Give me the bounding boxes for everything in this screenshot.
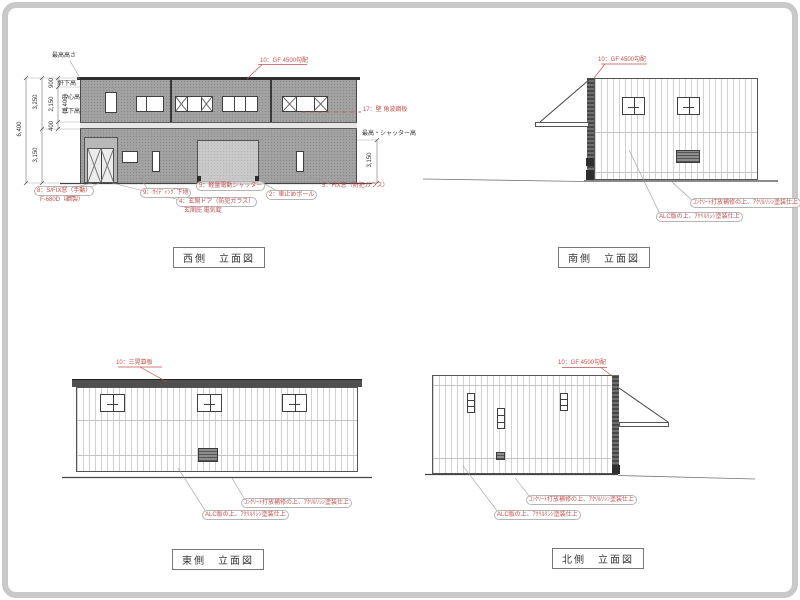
east-window (100, 394, 125, 412)
south-canopy (535, 122, 589, 127)
south-joint-line (595, 172, 757, 173)
east-window (197, 394, 222, 412)
window-mullion (245, 97, 246, 111)
door-x-mark (101, 149, 114, 182)
south-vent-grille (676, 150, 700, 163)
east-roof-note: 10：三晃葺板 (116, 359, 153, 367)
window-mullion (289, 404, 301, 405)
west-dim-lower: 3,150 (33, 140, 39, 170)
west-dim-window-band: 2,150 (49, 89, 55, 119)
west-floor-band (80, 122, 357, 129)
window-mullion (561, 405, 567, 406)
north-vent-grille (496, 452, 505, 460)
west-title: 西側 立面図 (173, 247, 265, 268)
west-wall-note: 17：壁 角波鋼板 (363, 106, 407, 114)
west-label-pole: 2：車止めポール (266, 190, 317, 200)
west-entrance-door (87, 148, 114, 183)
west-dim-shutter-height: 3,150 (367, 145, 373, 175)
north-canopy (619, 422, 669, 427)
casement-x-mark (283, 97, 296, 111)
south-joint-line (595, 132, 757, 133)
window-mullion (498, 415, 504, 416)
south-column-base (586, 170, 594, 180)
west-dim-overall: 6,400 (17, 114, 23, 144)
north-title: 北側 立面図 (552, 548, 644, 569)
window-mullion (204, 404, 216, 405)
south-column-base (586, 158, 594, 166)
south-window (622, 97, 645, 115)
north-joint-line (433, 385, 611, 386)
west-dim-sill: 400 (49, 116, 55, 136)
north-column-base (612, 465, 620, 474)
north-facade (432, 375, 613, 474)
north-finish-alc: ALC版の上、ｱｸﾘﾙﾘｼﾝ塗装仕上 (494, 510, 581, 520)
south-window (677, 97, 700, 115)
window-mullion (468, 400, 474, 401)
window-mullion (683, 107, 694, 108)
east-vent-grille (198, 448, 218, 462)
north-roof-note: 10：GF 4500勾配 (558, 359, 606, 367)
west-label-entrance-2: 玄関庇 電気錠 (184, 207, 222, 215)
west-dim-window-inner: (1,400) (63, 89, 69, 119)
casement-x-mark (314, 97, 327, 111)
west-label-shutter-max: 最高・シャッター高 (362, 131, 416, 138)
west-label-shutter: 5：軽量電動シャッター (196, 181, 265, 191)
west-dim-upper: 3,250 (33, 87, 39, 117)
window-mullion (561, 399, 567, 400)
west-label-slit-window-2: F-680D（鋼製） (40, 196, 84, 204)
window-mullion (146, 97, 147, 111)
north-slit-window (467, 393, 475, 413)
north-joint-line (433, 458, 611, 459)
window-mullion (187, 97, 188, 111)
west-window (175, 96, 213, 112)
east-finish-alc: ALC版の上、ｱｸﾘﾙﾘｼﾝ塗装仕上 (202, 510, 289, 520)
window-mullion (107, 404, 119, 405)
west-window (136, 96, 164, 112)
window-mullion (498, 422, 504, 423)
north-slit-window (560, 393, 568, 411)
south-title: 南側 立面図 (558, 247, 650, 268)
north-corner-column (612, 375, 619, 474)
west-window (282, 96, 328, 112)
south-finish-concrete: ｺﾝｸﾘｰﾄ打放補修の上、ｱｸﾘﾙﾘｼﾝ塗装仕上 (690, 198, 800, 208)
west-label-max-height: 最高高さ (52, 53, 76, 60)
window-mullion (296, 97, 297, 111)
west-garage-shutter (197, 140, 259, 183)
casement-x-mark (176, 97, 187, 111)
south-finish-alc: ALC版の上、ｱｸﾘﾙﾘｼﾝ塗装仕上 (656, 212, 743, 222)
east-finish-concrete: ｺﾝｸﾘｰﾄ打放補修の上、ｱｸﾘﾙﾘｼﾝ塗装仕上 (241, 498, 352, 508)
elevation-drawing-sheet: 10：GF 4500勾配 17：壁 角波鋼板 8：S/FIX窓（手動） F-68… (0, 0, 800, 600)
west-label-fix-window: 5：FIX窓（防犯ガラス） (322, 182, 389, 190)
east-joint-line (77, 420, 357, 421)
west-slit-window (296, 151, 304, 172)
window-mullion (628, 107, 639, 108)
casement-x-mark (201, 97, 212, 111)
south-facade (594, 78, 758, 180)
west-window-low (122, 151, 138, 163)
window-mullion (234, 97, 235, 111)
south-roof-note: 10：GF 4500勾配 (598, 56, 646, 64)
east-window (282, 394, 307, 412)
west-slit-window (152, 151, 160, 172)
west-panel-joint (170, 80, 172, 122)
north-slit-window (497, 408, 505, 429)
door-x-mark (88, 149, 101, 182)
west-label-slit-window: 8：S/FIX窓（手動） (34, 186, 94, 196)
west-window-small (105, 92, 117, 113)
west-panel-joint (270, 80, 272, 122)
west-roof-note: 10：GF 4500勾配 (260, 57, 308, 65)
west-label-entrance: 4：玄関ドア（防犯ガラス） (176, 197, 257, 207)
west-label-eave: 軒下高 (58, 81, 76, 88)
east-roof-band (72, 379, 362, 387)
east-title: 東側 立面図 (172, 549, 264, 570)
window-mullion (468, 406, 474, 407)
west-window (222, 96, 258, 112)
north-finish-concrete: ｺﾝｸﾘｰﾄ打放補修の上、ｱｸﾘﾙﾘｼﾝ塗装仕上 (526, 495, 637, 505)
